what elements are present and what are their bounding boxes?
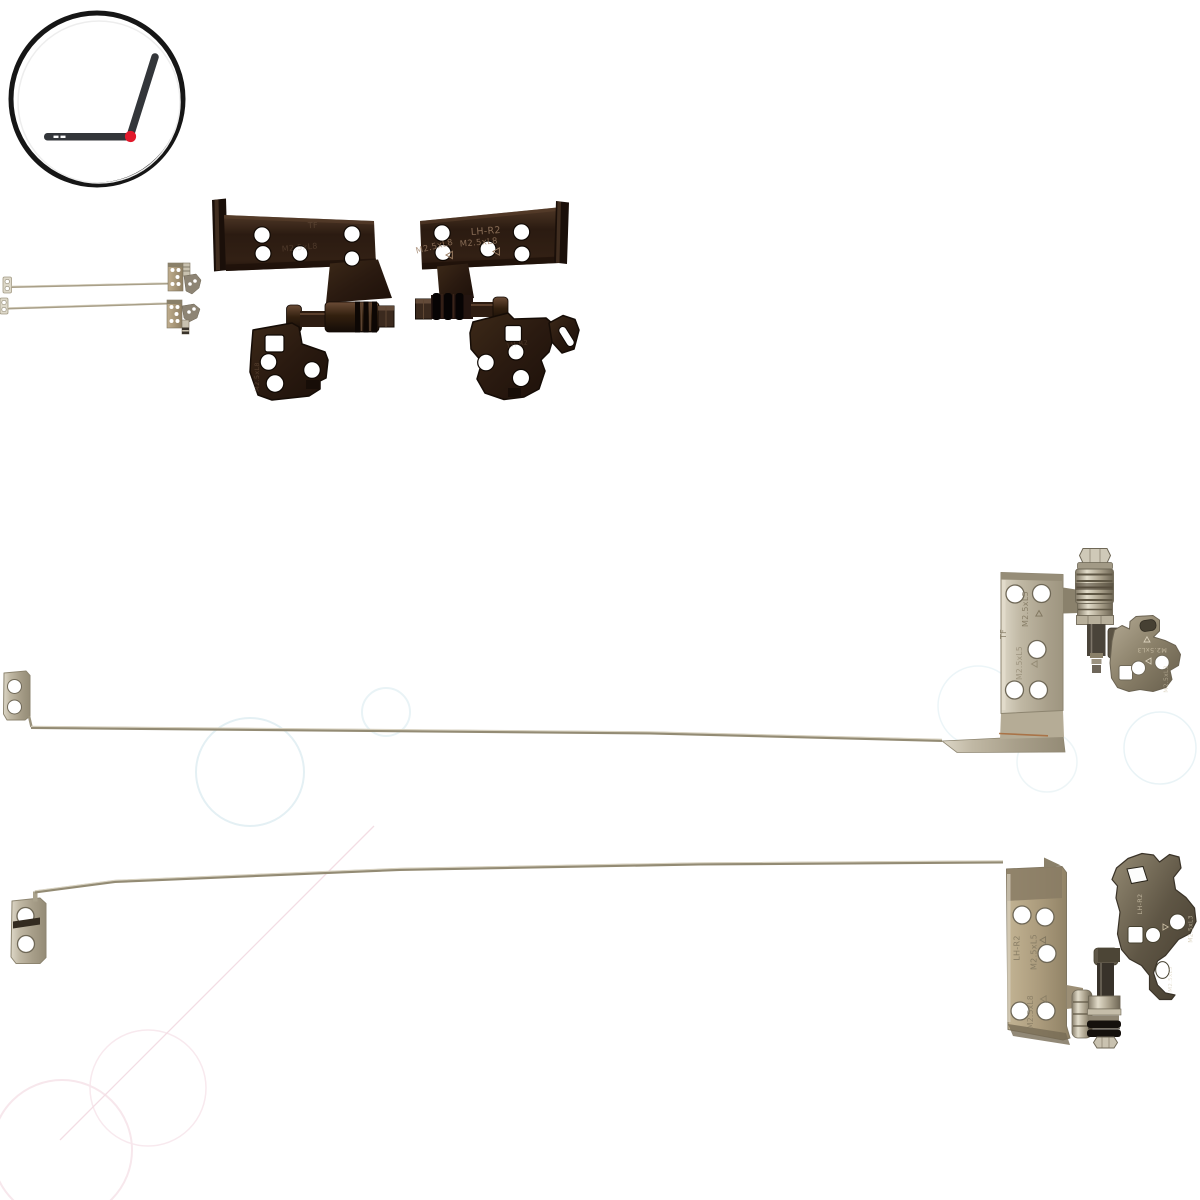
stamp-screw-spec: M2.5xL5 bbox=[1021, 591, 1030, 627]
screw-hole bbox=[344, 226, 360, 242]
barrel-ring bbox=[355, 302, 360, 333]
hinge-dot bbox=[125, 131, 136, 142]
screw-hole bbox=[255, 246, 271, 262]
barrel-washer bbox=[1078, 563, 1113, 570]
screw-hole bbox=[171, 268, 175, 272]
bracket-plate-fold bbox=[168, 263, 183, 267]
barrel-shaft bbox=[1097, 963, 1114, 996]
display-hinge-left: TF M2.5xL8 M2.5xL8 bbox=[212, 199, 394, 401]
screw-hole bbox=[513, 224, 529, 240]
screw-hole bbox=[5, 286, 9, 290]
hinge-barrel bbox=[183, 263, 190, 276]
hinge-arm bbox=[184, 274, 201, 294]
stamp-tf: TF bbox=[307, 221, 319, 231]
screw-hole bbox=[177, 282, 181, 286]
screw-hole bbox=[177, 268, 181, 272]
laptop-base-dash bbox=[61, 136, 66, 138]
tab-connector bbox=[29, 716, 32, 727]
watermark-circle bbox=[196, 718, 304, 826]
bracket-plate-fold bbox=[167, 300, 182, 304]
support-rail bbox=[31, 728, 942, 741]
mini-rail-assembly-bottom bbox=[0, 298, 200, 334]
screw-hole bbox=[1038, 945, 1056, 963]
stamp-screw-spec: M2.5xL5 bbox=[1030, 934, 1039, 970]
watermark-circle bbox=[90, 1030, 206, 1146]
screw-hole bbox=[266, 375, 284, 393]
barrel-shaft bbox=[1087, 624, 1106, 656]
screw-hole bbox=[176, 305, 180, 309]
screw-hole bbox=[1028, 641, 1046, 659]
screw-hole bbox=[193, 279, 197, 283]
screw-hole bbox=[2, 300, 6, 304]
screw-hole bbox=[344, 251, 359, 266]
shaft-ring bbox=[1092, 659, 1102, 664]
screw-hole bbox=[1170, 914, 1186, 930]
screw-hole bbox=[171, 282, 175, 286]
stamp-model: LH-R2 bbox=[1013, 935, 1022, 961]
shaft-ring bbox=[1092, 665, 1101, 673]
screw-hole bbox=[478, 354, 495, 371]
support-rail bbox=[8, 304, 167, 309]
thread-dark-band bbox=[1076, 583, 1114, 590]
screw-hole bbox=[304, 362, 321, 379]
plate-edge-highlight bbox=[1007, 874, 1011, 1022]
recess-notch bbox=[306, 380, 319, 389]
screw-hole bbox=[192, 307, 196, 311]
screw-hole bbox=[18, 936, 35, 953]
rubber-ring bbox=[433, 293, 441, 320]
screw-hole bbox=[187, 310, 191, 314]
screw-hole bbox=[1006, 681, 1024, 699]
screw-hole bbox=[176, 275, 180, 279]
rubber-ring bbox=[444, 293, 452, 320]
recess-notch bbox=[508, 388, 521, 397]
screw-hole bbox=[1030, 681, 1048, 699]
stamp-screw-spec: M2.5xL5 bbox=[1015, 646, 1024, 680]
stamp-tf: TF bbox=[999, 629, 1008, 640]
display-hinge-right: LH-R2 M2.5xL8 M2.5xL8 LH-R2 bbox=[415, 201, 579, 400]
laptop-base-dash bbox=[54, 136, 59, 138]
arm-knuckle-link bbox=[1098, 948, 1120, 962]
screw-hole bbox=[514, 246, 530, 262]
rail-assembly-upper: M2.5xL5 TF M2.5xL5 M2.5xL3 bbox=[4, 549, 1181, 753]
screw-hole bbox=[5, 279, 9, 283]
screw-hole bbox=[175, 312, 179, 316]
ridge-ring bbox=[1088, 1009, 1122, 1015]
screw-hole bbox=[8, 680, 22, 694]
square-hole bbox=[265, 335, 284, 352]
shaft-ring bbox=[1090, 653, 1103, 658]
stamp-screw-spec: M2.5xL3 bbox=[1163, 665, 1170, 693]
barrel-ring bbox=[364, 302, 369, 333]
plate-step bbox=[326, 260, 392, 304]
screw-hole bbox=[8, 700, 22, 714]
mini-rail-assembly-top bbox=[3, 263, 201, 294]
barrel-ring bbox=[372, 302, 377, 333]
product-photo: TF M2.5xL8 M2.5xL8 LH-R2 M2.5 bbox=[0, 0, 1200, 1200]
stamp-screw-spec: M2.5xL3 bbox=[1188, 915, 1195, 943]
screw-hole bbox=[1036, 908, 1054, 926]
screw-hole bbox=[170, 305, 174, 309]
screw-hole bbox=[170, 319, 174, 323]
ridge-ring bbox=[1089, 1016, 1119, 1021]
screw-hole bbox=[1037, 1002, 1055, 1020]
rail-assembly-lower: LH-R2 M2.5xL5 M2.5xL8 LH-R2 M2.5xL3 M2.5… bbox=[11, 854, 1196, 1049]
barrel-hex-head bbox=[1080, 549, 1111, 564]
rail-highlight bbox=[35, 861, 1003, 891]
stamp-screw-spec: M2.5xL5 bbox=[1168, 966, 1174, 992]
rubber-ring bbox=[1087, 1021, 1121, 1029]
barrel-flange-nut bbox=[1077, 616, 1114, 625]
stamp-screw-spec: M2.5xL8 bbox=[1026, 995, 1035, 1029]
laptop-screen bbox=[130, 57, 155, 137]
stamp-screw-spec: M2.5xL8 bbox=[253, 362, 261, 392]
screw-hole bbox=[254, 227, 270, 243]
barrel-ring bbox=[182, 332, 189, 335]
screw-hole bbox=[260, 354, 277, 371]
screw-hole bbox=[2, 307, 6, 311]
barrel-ring bbox=[182, 328, 189, 331]
hinge-arm bbox=[182, 304, 200, 322]
brand-logo bbox=[11, 13, 183, 185]
rubber-ring bbox=[456, 293, 464, 320]
barrel-collar bbox=[1089, 996, 1121, 1009]
screw-hole bbox=[1132, 661, 1146, 675]
square-hole bbox=[1128, 927, 1143, 944]
watermark-circle bbox=[1124, 712, 1196, 784]
screw-hole bbox=[1146, 928, 1161, 943]
screw-hole bbox=[176, 319, 180, 323]
screw-hole bbox=[1033, 585, 1051, 603]
square-hole bbox=[1119, 666, 1133, 681]
plate-top-fold bbox=[1007, 867, 1063, 902]
screw-hole bbox=[188, 282, 192, 286]
hinge-barrel bbox=[325, 302, 379, 332]
screw-hole bbox=[1013, 906, 1031, 924]
rubber-ring bbox=[1087, 1030, 1121, 1038]
stamp-model: LH-R2 bbox=[1136, 893, 1144, 914]
barrel-hex-nut bbox=[1094, 1037, 1118, 1048]
stamp-screw-spec: M2.5xL3 bbox=[1137, 646, 1167, 654]
watermark-circle bbox=[0, 1080, 132, 1200]
screw-hole bbox=[512, 369, 529, 386]
